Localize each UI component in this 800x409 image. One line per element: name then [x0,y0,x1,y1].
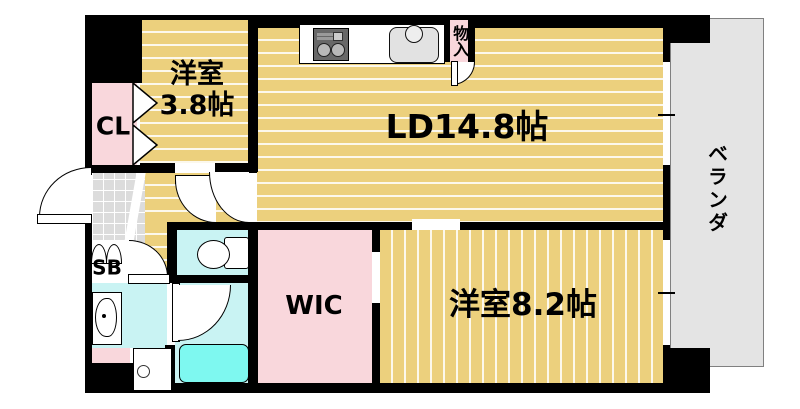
room-ld-label: LD14.8帖 [386,108,549,146]
wall [372,303,380,383]
room-western-3-8-size: 3.8帖 [160,90,235,121]
washing-machine-icon [133,348,172,391]
wall [85,165,145,173]
wall [85,363,133,393]
shoe-box-label: SB [92,257,122,280]
door-leaf [128,274,170,284]
wall [663,165,670,240]
wall [140,15,248,20]
wall [372,228,380,252]
wall [85,15,92,175]
room-western-3-8-name: 洋室 [160,59,235,90]
wall [663,15,710,43]
wall [85,15,142,83]
window-tick [658,114,675,116]
closet-cl-label: CL [96,113,130,142]
bathtub-icon [179,344,249,383]
wic-label: WIC [285,292,342,322]
window-tick [658,292,675,294]
veranda-label: ベランダ [705,143,728,235]
room-western-8-2-label: 洋室8.2帖 [449,288,597,324]
door-leaf [451,61,458,86]
toilet-bowl-icon [197,240,230,269]
storage-monoire-label: 物入 [450,25,468,57]
wall [663,345,670,393]
wall [248,15,258,172]
folding-door-icon [132,82,158,166]
wall [167,275,257,283]
wall [663,348,710,393]
vanity-sink-icon [92,292,122,345]
wall [663,15,670,62]
faucet-icon [405,25,423,43]
wall [460,222,663,230]
entrance-door-leaf [37,214,92,224]
door-swing-arc [39,167,91,217]
room-western-3-8-label: 洋室 3.8帖 [160,59,235,121]
floorplan-canvas: 洋室 3.8帖 CL LD14.8帖 物入 ベランダ SB WIC 洋室8.2帖 [0,0,800,409]
wall [248,228,258,385]
wall [468,15,475,62]
sliding-door-gap [412,219,460,229]
stove-icon [313,28,349,61]
